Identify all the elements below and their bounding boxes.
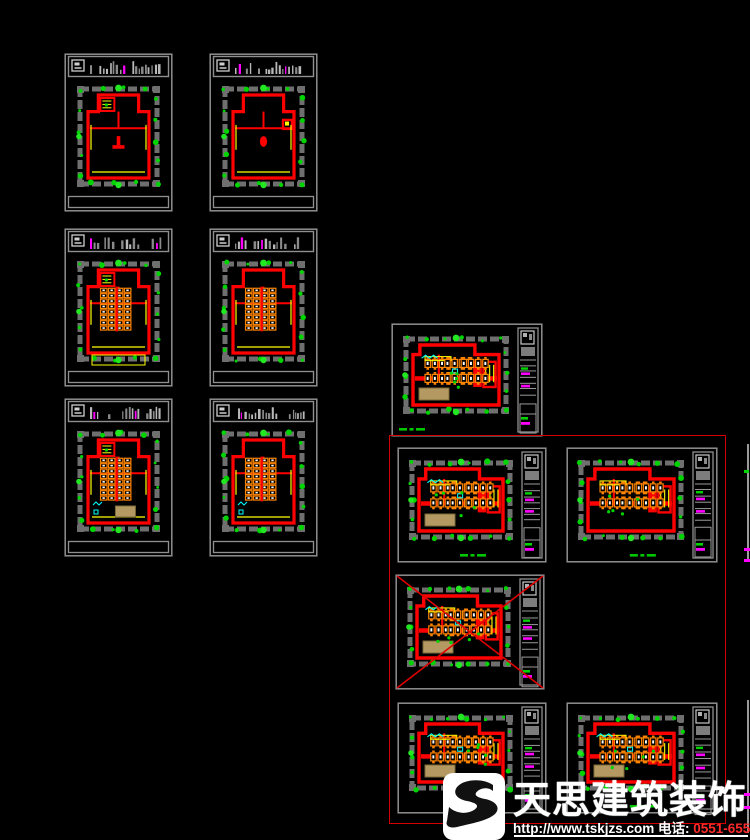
- title-strip: [69, 232, 169, 252]
- furniture: [101, 457, 131, 502]
- cutoff-drawing-mark: [744, 793, 750, 796]
- cutoff-drawing-mark: [744, 559, 750, 562]
- bottom-strip: [69, 372, 169, 383]
- bottom-strip: [69, 197, 169, 208]
- bottom-strip: [214, 372, 314, 383]
- furniture: [246, 457, 276, 502]
- title-strip: [214, 57, 314, 77]
- bottom-strip: [214, 542, 314, 553]
- top-room: [100, 443, 114, 456]
- logo-underline: [514, 835, 748, 837]
- drawing-plan-3f-b[interactable]: [209, 398, 318, 557]
- drawing-plan-1f-a[interactable]: [64, 53, 173, 212]
- bottom-strip: [214, 197, 314, 208]
- floor-plan: [402, 335, 509, 416]
- title-strip: [214, 402, 314, 422]
- floor-plan: [76, 430, 160, 534]
- drawing-plan-2f-b[interactable]: [209, 228, 318, 387]
- building-walls: [233, 95, 294, 178]
- drawing-plan-2f-a[interactable]: [64, 228, 173, 387]
- title-strip: [214, 232, 314, 252]
- floor-plan: [221, 85, 306, 189]
- floor-plan: [221, 260, 306, 364]
- drawing-plan-1f-b[interactable]: [209, 53, 318, 212]
- cyan-annotations: [93, 502, 102, 514]
- bottom-strip: [69, 542, 169, 553]
- selection-rectangle: [389, 435, 726, 824]
- caption-marks: [399, 428, 425, 431]
- cyan-annotations: [238, 502, 247, 514]
- drawing-layout-a[interactable]: [391, 323, 543, 437]
- yellow-details: [236, 125, 291, 172]
- floor-plan: [76, 260, 161, 365]
- floor-plan: [221, 429, 305, 533]
- cutoff-drawing-mark: [744, 470, 749, 473]
- tan-desk: [115, 506, 135, 517]
- title-block: [518, 328, 538, 433]
- cad-viewport[interactable]: 天思建筑装饰 http://www.tskjzs.com 电话: 0551-65…: [0, 0, 750, 840]
- furniture: [101, 287, 131, 332]
- cutoff-drawing-edge: [747, 700, 749, 833]
- top-room: [100, 98, 114, 111]
- top-room: [100, 273, 114, 286]
- building-walls: [88, 95, 149, 178]
- title-strip: [69, 402, 169, 422]
- drawing-plan-3f-a[interactable]: [64, 398, 173, 557]
- floor-plan: [76, 85, 161, 189]
- cutoff-drawing-mark: [744, 806, 750, 809]
- furniture: [246, 287, 276, 332]
- cutoff-drawing-edge: [747, 444, 749, 562]
- title-strip: [69, 57, 169, 77]
- tan-desk: [419, 388, 449, 400]
- cutoff-drawing-mark: [744, 548, 750, 551]
